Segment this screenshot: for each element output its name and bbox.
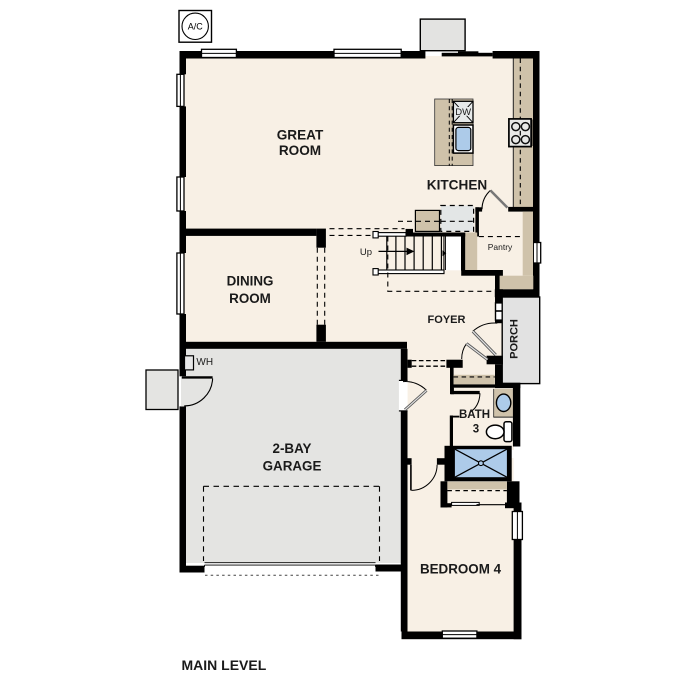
svg-text:FOYER: FOYER xyxy=(428,314,466,326)
svg-text:GREAT: GREAT xyxy=(277,128,324,143)
svg-text:Up: Up xyxy=(360,247,372,258)
svg-text:PORCH: PORCH xyxy=(509,319,521,359)
svg-text:BATH: BATH xyxy=(459,409,490,421)
svg-text:DINING: DINING xyxy=(227,273,274,288)
svg-text:GARAGE: GARAGE xyxy=(263,459,322,474)
svg-text:KITCHEN: KITCHEN xyxy=(427,178,487,193)
svg-text:Pantry: Pantry xyxy=(488,242,513,252)
svg-text:ROOM: ROOM xyxy=(279,143,321,158)
svg-text:DW: DW xyxy=(455,107,471,118)
svg-text:MAIN LEVEL: MAIN LEVEL xyxy=(182,657,267,673)
svg-text:BEDROOM 4: BEDROOM 4 xyxy=(420,562,502,577)
svg-text:3: 3 xyxy=(473,424,479,436)
svg-text:A/C: A/C xyxy=(188,22,204,32)
svg-text:WH: WH xyxy=(196,357,213,368)
svg-text:ROOM: ROOM xyxy=(229,291,271,306)
svg-text:2-BAY: 2-BAY xyxy=(273,441,312,456)
